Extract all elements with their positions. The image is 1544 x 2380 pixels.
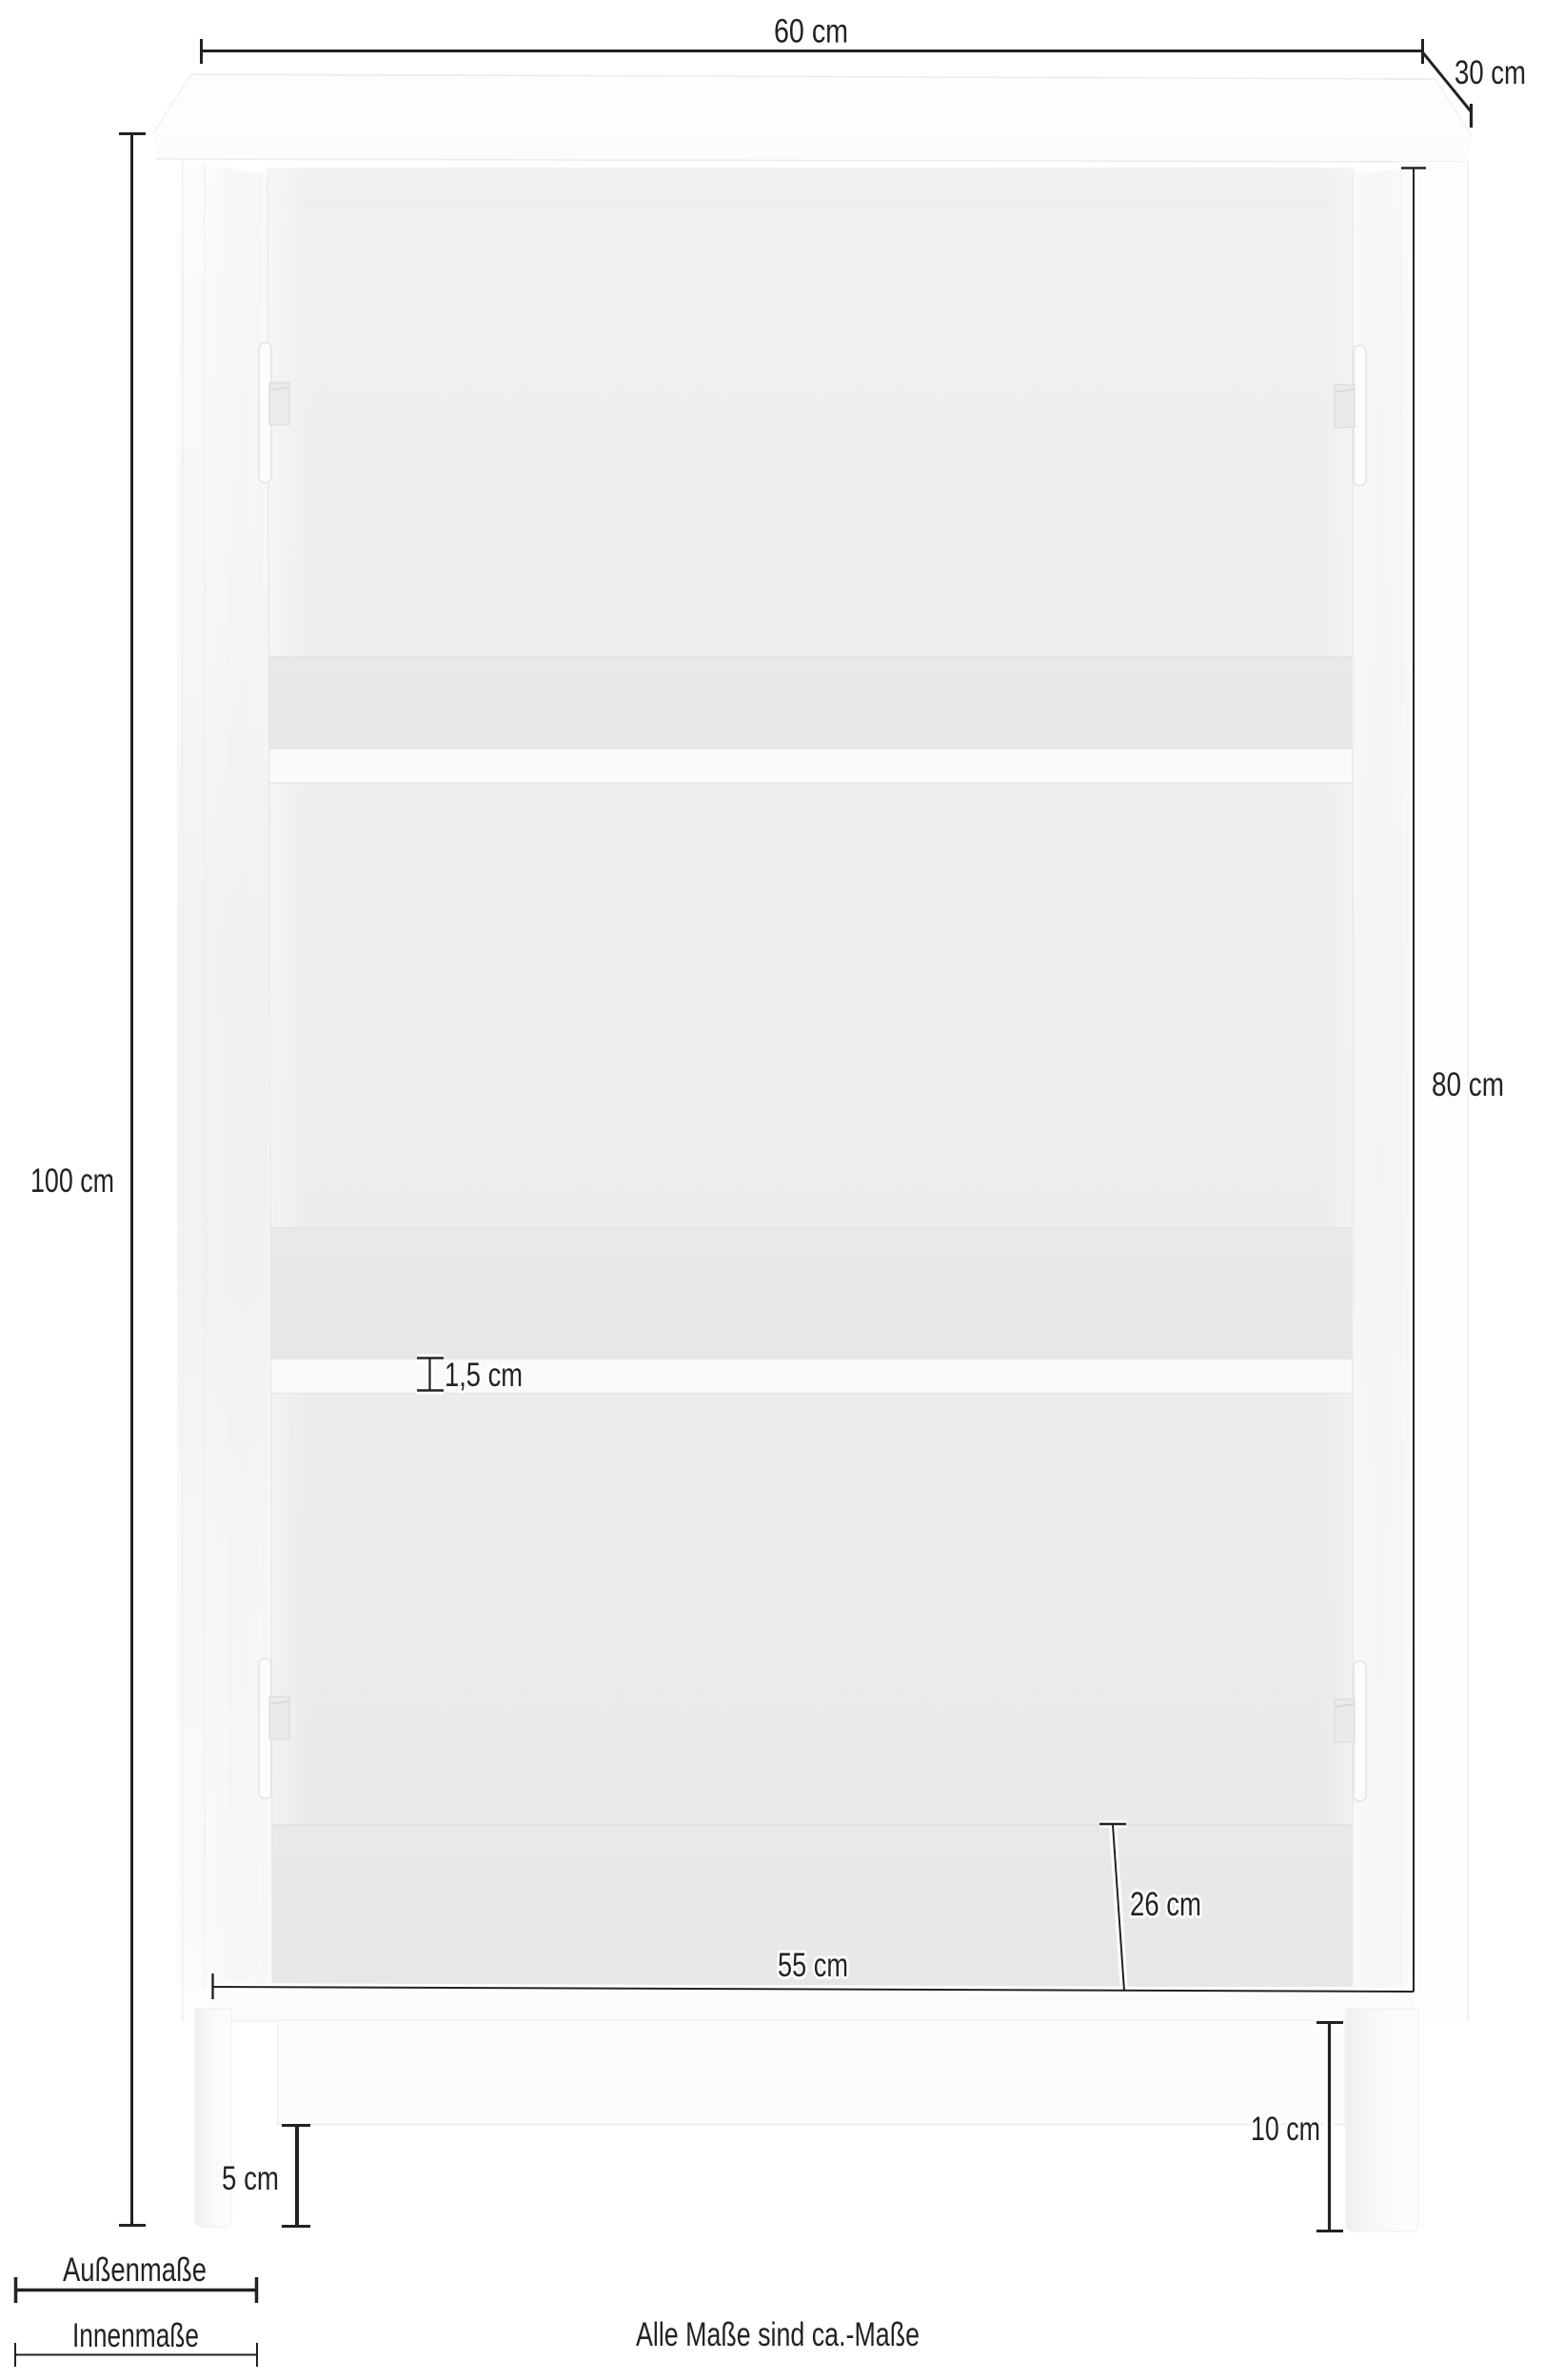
svg-text:5 cm: 5 cm [222,2160,279,2197]
svg-text:1,5 cm: 1,5 cm [445,1357,523,1394]
svg-text:60 cm: 60 cm [774,13,848,50]
svg-text:30 cm: 30 cm [1455,54,1526,91]
svg-text:Außenmaße: Außenmaße [63,2251,207,2289]
svg-text:80 cm: 80 cm [1432,1066,1504,1103]
svg-text:Alle Maße sind ca.-Maße: Alle Maße sind ca.-Maße [636,2316,920,2353]
svg-text:Innenmaße: Innenmaße [72,2317,199,2354]
svg-text:26 cm: 26 cm [1130,1886,1201,1923]
svg-text:55 cm: 55 cm [778,1947,848,1984]
svg-text:100 cm: 100 cm [30,1162,114,1200]
svg-text:10 cm: 10 cm [1251,2111,1320,2148]
